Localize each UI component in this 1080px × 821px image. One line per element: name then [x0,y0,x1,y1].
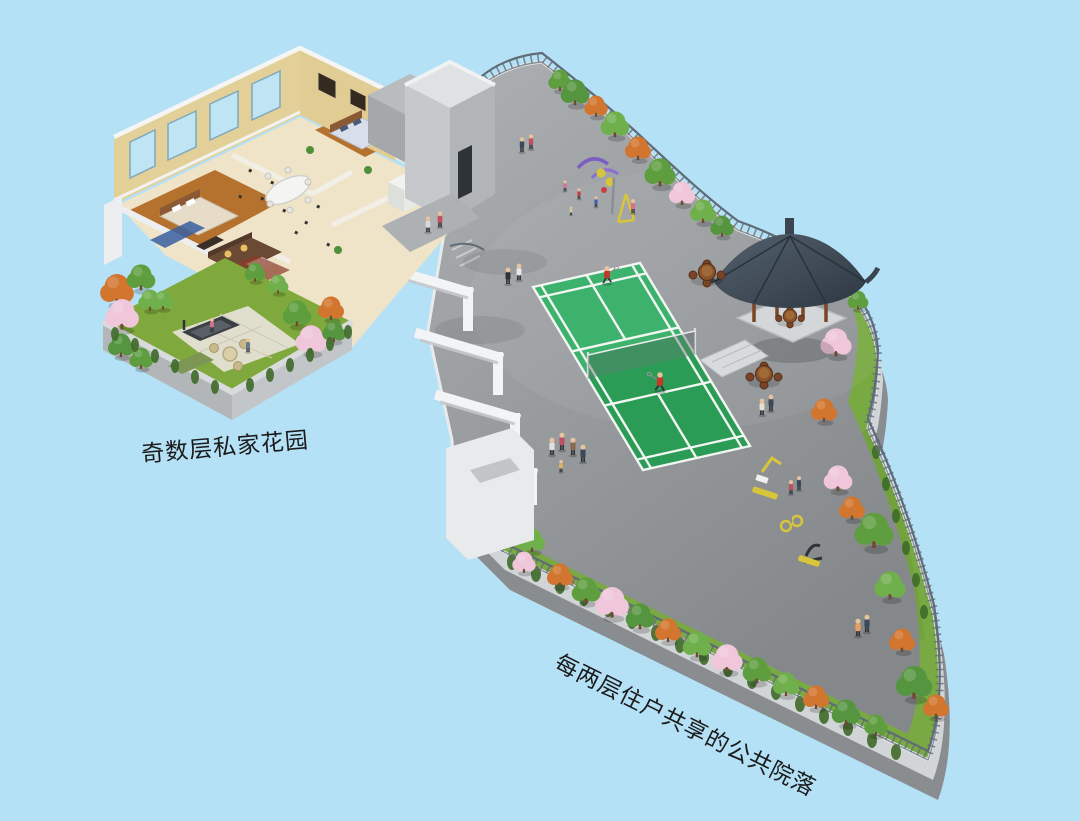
scene-illustration: 奇数层私家花园 每两层住户共享的公共院落 [0,0,1080,821]
house-plant [364,166,372,174]
house-plant [334,246,342,254]
core-doorway [458,145,472,199]
parapet-block [446,428,534,560]
house-plant [306,146,314,154]
rendering-canvas: 奇数层私家花园 每两层住户共享的公共院落 [0,0,1080,821]
